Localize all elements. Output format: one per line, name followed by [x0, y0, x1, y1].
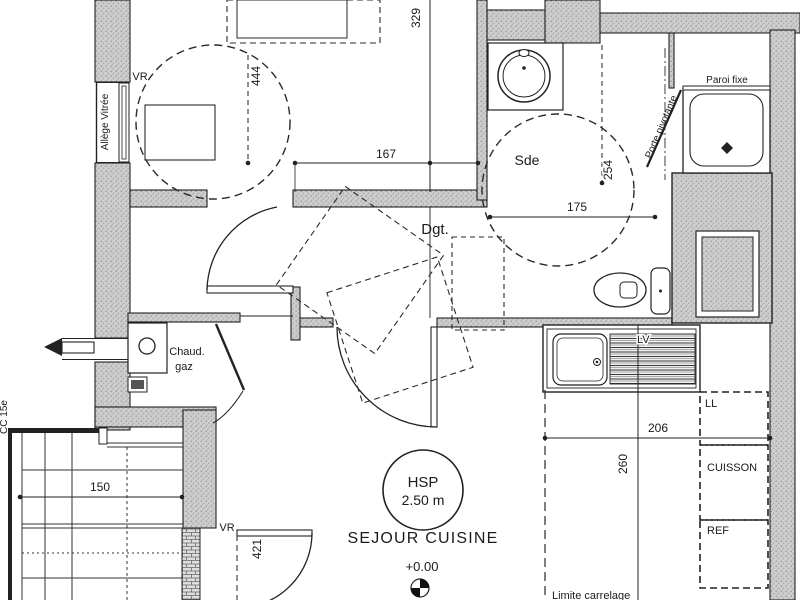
balcony: [8, 428, 183, 600]
door-dgt-leaf: [431, 327, 437, 427]
entry-arrow-tail: [62, 342, 94, 353]
wardrobe-rect: [237, 0, 347, 38]
wall-bedroom-south-left: [130, 190, 207, 207]
wall-left-top: [95, 0, 130, 82]
dim-444: 444: [249, 66, 263, 86]
balcony-edge-west: [8, 428, 12, 600]
sink-drain-dot: [596, 361, 599, 364]
door-balcony-leaf: [237, 530, 312, 536]
sill-label: Allège Vitrée: [100, 93, 111, 150]
technical-shaft: [672, 173, 772, 323]
level-value: +0.00: [406, 559, 439, 574]
cooking-zone: [700, 445, 768, 520]
turning-circle-bedroom: [136, 45, 290, 199]
door-dgt-arc: [337, 327, 437, 427]
room-label-sejour: SEJOUR CUISINE: [347, 530, 498, 547]
wall-shower-divider: [669, 33, 674, 88]
dimension-labels: 167 329 444 254 175 206 260 150 421: [90, 8, 668, 559]
wall-right: [770, 30, 795, 600]
overhead-soffit-dashed: [227, 0, 380, 43]
wall-sde-west: [477, 0, 487, 200]
hsp-tag: HSP: [408, 474, 439, 491]
wall-basin-nook: [487, 10, 545, 40]
furniture-rect: [145, 105, 215, 160]
dim-150: 150: [90, 480, 110, 494]
boiler-small-box-inner: [131, 380, 144, 389]
window-balcony-frame: [182, 528, 200, 600]
floor-plan-page: Sde Dgt. HSP 2.50 m SEJOUR CUISINE +0.00…: [0, 0, 800, 600]
vr-top-label: VR: [132, 71, 147, 83]
window-left-glazing: [122, 86, 126, 159]
room-label-sde: Sde: [515, 152, 540, 168]
wall-left-mid: [95, 163, 130, 338]
level-symbol-quadrant: [420, 579, 429, 588]
boiler-label-2: gaz: [175, 361, 193, 373]
edge-note-label: CC 15e: [0, 400, 10, 434]
kitchen: [543, 325, 768, 588]
entry-arrow-head: [44, 338, 62, 356]
wall-top-corner: [545, 0, 600, 43]
door-swing-envelope-1: [276, 186, 443, 353]
entry-arrow: [44, 338, 130, 360]
fixed-panel-label: Paroi fixe: [706, 75, 748, 86]
basin-drain: [522, 66, 526, 70]
room-label-dgt: Dgt.: [421, 221, 449, 238]
wc-cistern-button: [659, 290, 662, 293]
dim-175: 175: [567, 200, 587, 214]
level-symbol-quadrant: [411, 588, 420, 597]
dim-329: 329: [409, 8, 423, 28]
basin-tap: [519, 50, 529, 57]
balcony-edge-north: [8, 428, 107, 433]
door-bedroom-arc: [207, 207, 277, 290]
dim-260: 260: [616, 454, 630, 474]
door-swing-envelope-2: [327, 257, 473, 403]
pivot-door-label: Porte pivotante: [643, 94, 680, 161]
balcony-notch: [99, 428, 107, 444]
shower-fixed-panel: [683, 86, 770, 90]
dim-206: 206: [648, 421, 668, 435]
wall-balcony-pier: [183, 410, 216, 528]
wall-door-stub: [291, 287, 300, 340]
fridge-label: REF: [707, 525, 729, 537]
drainer-ribs: [610, 334, 695, 384]
wall-bedroom-south-right: [293, 190, 487, 207]
door-swing-envelope-3: [452, 237, 504, 330]
hsp-value: 2.50 m: [402, 492, 445, 508]
dim-167: 167: [376, 147, 396, 161]
dim-421: 421: [250, 539, 264, 559]
washer-label: LL: [705, 398, 717, 410]
door-entry-arc: [213, 391, 243, 423]
boiler-label-1: Chaud.: [169, 346, 204, 358]
shower-tray: [683, 88, 770, 173]
floor-plan-drawing: Sde Dgt. HSP 2.50 m SEJOUR CUISINE +0.00…: [0, 0, 800, 600]
wall-boiler-nook: [128, 313, 240, 322]
level-marker: [383, 450, 463, 597]
sink-unit-label: LV: [637, 334, 650, 346]
boiler-closet: [128, 323, 167, 392]
cooking-label: CUISSON: [707, 462, 757, 474]
boiler-unit: [128, 323, 167, 373]
turning-circle-sde: [482, 114, 634, 266]
door-balcony-arc: [237, 533, 312, 600]
door-entry-leaf: [216, 324, 244, 390]
shaft-inner: [702, 237, 753, 311]
dim-254: 254: [601, 160, 615, 180]
tile-limit-label: Limite carrelage: [552, 590, 630, 600]
vr-bottom-label: VR: [219, 522, 234, 534]
